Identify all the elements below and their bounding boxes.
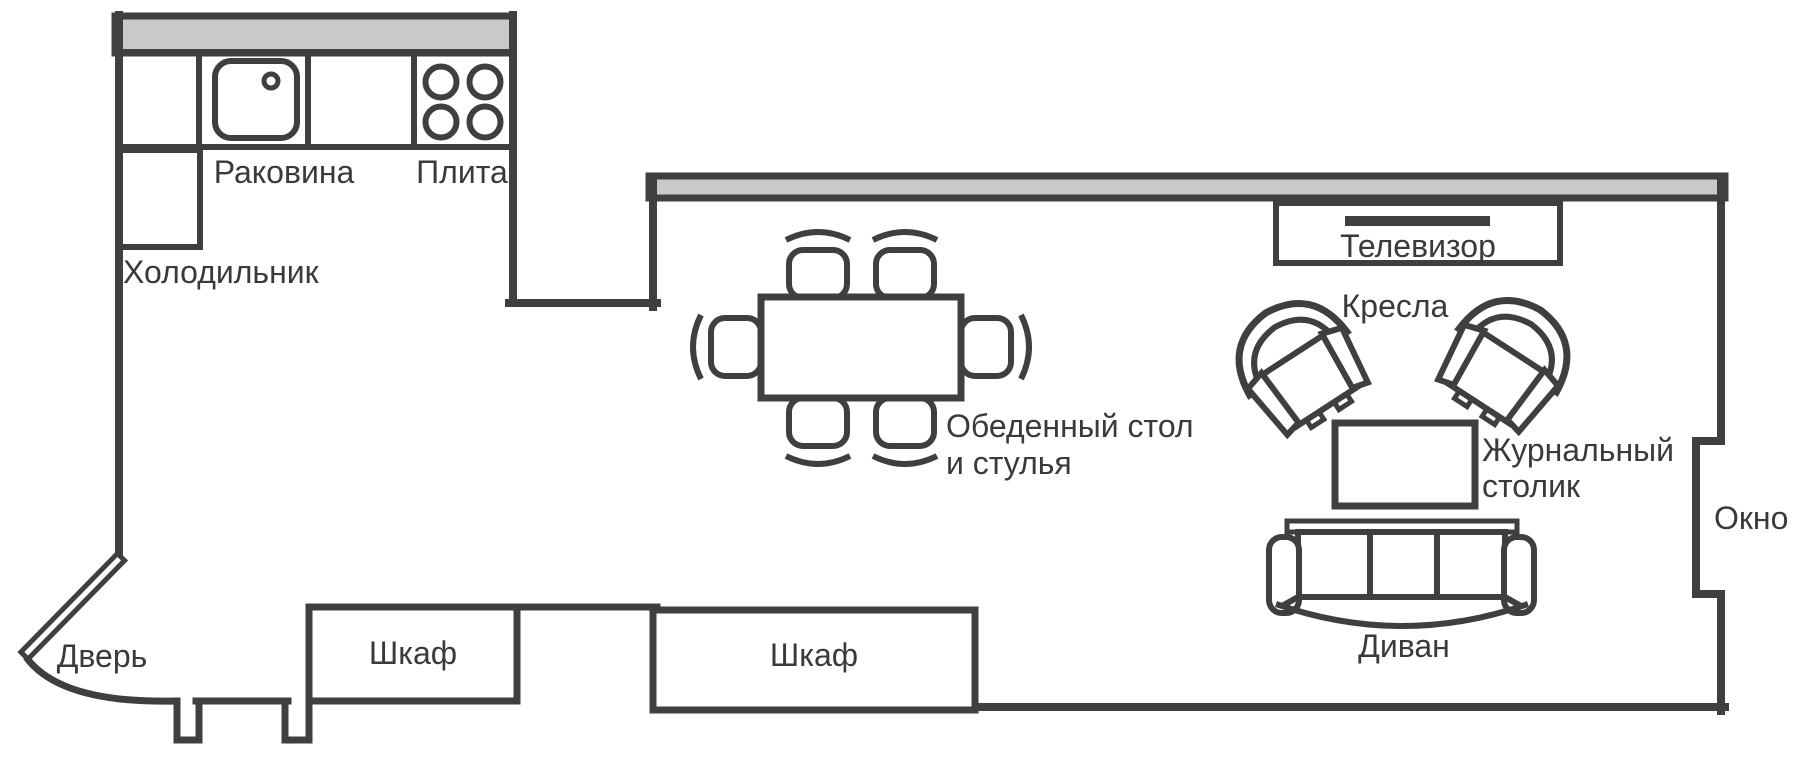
tv-label: Телевизор [1340, 228, 1496, 264]
dining-chair [786, 398, 850, 464]
door-label: Дверь [57, 638, 148, 674]
floor-plan: Дверь Раковина Плита Холодильник Шкаф Шк… [0, 0, 1800, 767]
cabinet-1-label: Шкаф [369, 635, 457, 671]
dining-chair [961, 315, 1029, 379]
dining-table [761, 297, 961, 398]
dining-label-line2: и стулья [946, 445, 1072, 481]
right-wall [1696, 180, 1721, 711]
dining-set: Обеденный стол и стулья [693, 232, 1194, 481]
dining-chair [873, 398, 937, 464]
kitchen: Раковина Плита Холодильник [118, 52, 513, 290]
sofa-front-curve [1276, 597, 1528, 626]
sofa-seat [1298, 532, 1505, 597]
dining-label-line1: Обеденный стол [946, 408, 1194, 444]
cabinet-2-label: Шкаф [770, 637, 858, 673]
armchair-right [1426, 278, 1589, 443]
stove-icon [426, 67, 501, 138]
coffee-table-outline [1335, 423, 1475, 506]
tv-screen-icon [1345, 216, 1490, 226]
coffee-table: Журнальный столик [1335, 423, 1674, 506]
living-window-band [649, 176, 1725, 198]
kitchen-jog-wall [509, 180, 657, 307]
armchairs-label: Кресла [1342, 288, 1449, 324]
fridge-label: Холодильник [123, 254, 320, 290]
sink-label: Раковина [214, 154, 355, 190]
bottom-wall-left-stubs [177, 611, 309, 740]
window-label: Окно [1714, 500, 1788, 536]
kitchen-window-band [115, 16, 513, 53]
coffee-table-label-line1: Журнальный [1482, 432, 1674, 468]
dining-chair [873, 232, 937, 298]
sink-icon [215, 61, 297, 138]
sofa: Диван [1269, 521, 1534, 664]
sofa-label: Диван [1358, 628, 1450, 664]
entry-door: Дверь [21, 554, 177, 702]
coffee-table-label-line2: столик [1482, 468, 1581, 504]
stove-label: Плита [416, 154, 508, 190]
dining-chair [693, 315, 761, 379]
dining-chair [786, 232, 850, 298]
tv: Телевизор [1276, 203, 1560, 264]
cabinets: Шкаф Шкаф [309, 607, 975, 710]
fridge-icon [119, 150, 200, 247]
